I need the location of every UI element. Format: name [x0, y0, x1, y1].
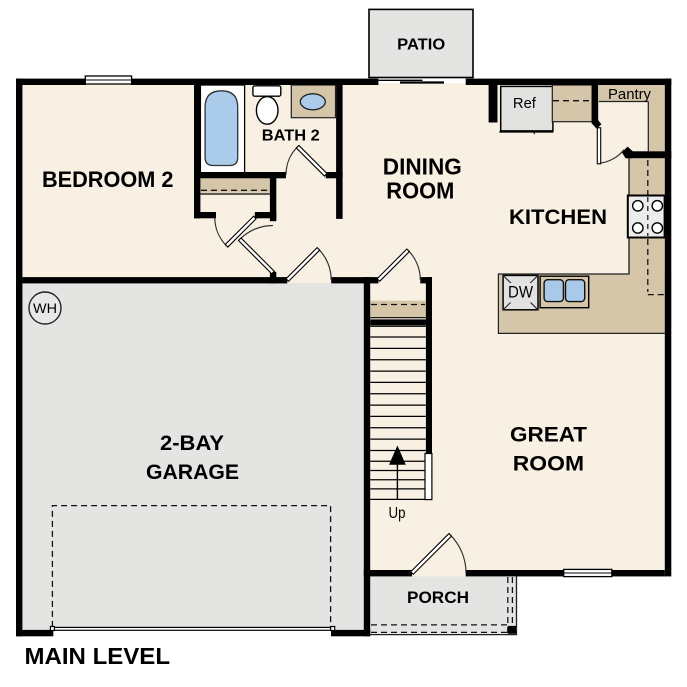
svg-text:BEDROOM 2: BEDROOM 2: [42, 167, 174, 192]
svg-text:MAIN LEVEL: MAIN LEVEL: [25, 643, 171, 669]
svg-text:2-BAY: 2-BAY: [160, 432, 224, 455]
svg-text:ROOM: ROOM: [386, 178, 454, 204]
svg-text:ROOM: ROOM: [513, 452, 584, 475]
svg-text:WH: WH: [33, 301, 57, 316]
svg-text:BATH 2: BATH 2: [262, 127, 320, 144]
svg-text:DINING: DINING: [383, 154, 462, 180]
svg-text:DW: DW: [508, 283, 533, 302]
svg-text:PATIO: PATIO: [397, 37, 445, 54]
svg-text:KITCHEN: KITCHEN: [509, 206, 607, 229]
svg-text:GREAT: GREAT: [510, 423, 587, 446]
svg-text:PORCH: PORCH: [407, 588, 469, 607]
svg-text:Ref: Ref: [513, 95, 537, 112]
svg-text:Up: Up: [389, 505, 406, 522]
svg-text:Pantry: Pantry: [608, 87, 652, 103]
svg-text:GARAGE: GARAGE: [146, 461, 239, 484]
